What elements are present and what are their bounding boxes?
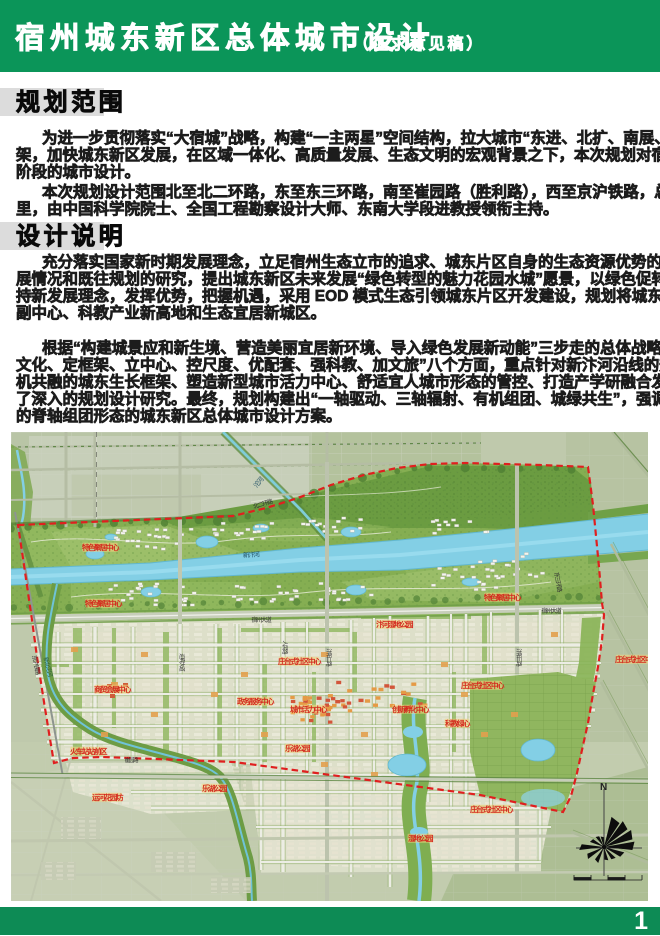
svg-text:宿州大道: 宿州大道 (541, 607, 561, 615)
svg-text:汴阳三路: 汴阳三路 (515, 648, 523, 667)
svg-text:庄台式社区中心: 庄台式社区中心 (615, 654, 648, 664)
svg-text:湿地公园: 湿地公园 (408, 833, 434, 843)
svg-text:特色聚居中心: 特色聚居中心 (82, 542, 120, 552)
svg-text:城市活力中心: 城市活力中心 (290, 704, 328, 714)
svg-text:N: N (600, 782, 607, 793)
svg-text:庄台式社区中心: 庄台式社区中心 (461, 680, 505, 690)
svg-text:商贸会展中心: 商贸会展中心 (94, 684, 132, 694)
svg-text:汴河湿地公园: 汴河湿地公园 (376, 619, 414, 629)
svg-text:乐湖公园: 乐湖公园 (285, 743, 311, 753)
svg-text:政务服务中心: 政务服务中心 (237, 696, 275, 706)
svg-text:庄台式社区中心: 庄台式社区中心 (278, 656, 322, 666)
svg-text:庄台式社区中心: 庄台式社区中心 (470, 804, 514, 814)
svg-text:火车站站前区: 火车站站前区 (70, 746, 108, 756)
svg-text:科教绿心: 科教绿心 (445, 718, 471, 728)
svg-text:迎宾大道: 迎宾大道 (178, 653, 186, 672)
svg-text:汴阳二路: 汴阳二路 (325, 648, 333, 667)
svg-text:创新孵化中心: 创新孵化中心 (391, 704, 430, 714)
svg-text:乐湖公园: 乐湖公园 (202, 783, 228, 793)
svg-text:特色聚居中心: 特色聚居中心 (85, 598, 123, 608)
svg-text:人民路: 人民路 (281, 641, 289, 656)
svg-text:特色聚居中心: 特色聚居中心 (484, 592, 522, 602)
svg-text:宿州大道: 宿州大道 (251, 616, 271, 624)
svg-text:崔园路: 崔园路 (125, 756, 140, 764)
svg-text:运河花园坊: 运河花园坊 (92, 792, 124, 802)
